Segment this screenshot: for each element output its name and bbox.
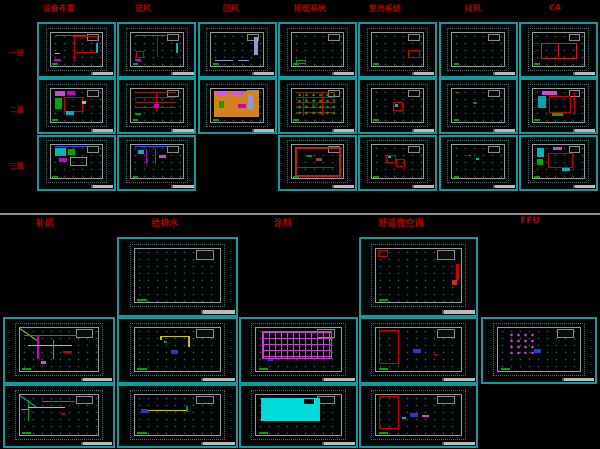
core-block (167, 34, 179, 41)
core-block (196, 396, 214, 404)
plan-thumbnail-top-r1-c7[interactable] (519, 22, 598, 78)
scale-bar (137, 368, 146, 370)
column-label-top-1: 设备布置 (43, 3, 75, 14)
plan-drawing (532, 144, 586, 179)
plan-overlay (138, 150, 144, 154)
scale-bar (534, 176, 540, 178)
plan-thumbnail-top-r2-c2[interactable] (117, 78, 196, 134)
plan-overlay (147, 410, 187, 411)
plan-overlay (215, 60, 233, 62)
core-block (569, 34, 581, 41)
plan-overlay (296, 92, 335, 117)
scale-bar (22, 368, 31, 370)
plan-overlay (67, 91, 75, 95)
plan-overlay (24, 335, 77, 336)
core-block (167, 146, 179, 153)
plan-drawing (19, 394, 100, 436)
column-label-top-3: 回风 (223, 3, 239, 14)
title-stamp (444, 378, 475, 382)
plan-overlay (248, 95, 253, 110)
plan-drawing (255, 394, 341, 436)
plan-overlay (146, 149, 147, 164)
plan-dimension-frame (528, 140, 590, 183)
plan-drawing (210, 88, 264, 123)
plan-drawing (210, 32, 264, 67)
plan-overlay (396, 159, 405, 167)
plan-thumbnail-top-r2-c6[interactable] (439, 78, 518, 134)
plan-dimension-frame (287, 84, 349, 127)
title-stamp (495, 72, 515, 75)
column-label-bottom-3: 涂料 (274, 216, 292, 229)
title-stamp (414, 72, 434, 75)
plan-overlay (141, 409, 148, 413)
plan-overlay (54, 59, 61, 62)
plan-overlay (574, 92, 575, 115)
column-label-bottom-5: FFU (520, 216, 540, 226)
scale-bar (454, 176, 460, 178)
scale-bar (52, 63, 58, 65)
plan-overlay (135, 146, 167, 147)
plan-overlay (402, 417, 406, 419)
title-stamp (203, 378, 235, 382)
plan-overlay (136, 51, 144, 58)
plan-overlay (74, 36, 75, 61)
plan-overlay (66, 111, 74, 115)
plan-dimension-frame (126, 84, 188, 127)
plan-overlay (37, 335, 39, 359)
plan-thumbnail-bottom-B-c2[interactable] (117, 317, 238, 384)
plan-overlay (231, 91, 244, 95)
plan-thumbnail-top-r2-c1[interactable] (37, 78, 116, 134)
plan-overlay (379, 330, 399, 364)
plan-dimension-frame (447, 28, 509, 71)
plan-thumbnail-bottom-C-c4[interactable] (359, 384, 478, 448)
plan-overlay (216, 92, 226, 97)
column-label-top-5: 室外系统 (369, 3, 401, 14)
core-block (196, 250, 214, 260)
row-label-floor-2: 二层 (10, 105, 24, 115)
plan-overlay (164, 341, 167, 343)
plan-thumbnail-bottom-C-c3[interactable] (239, 384, 358, 448)
title-stamp (324, 378, 355, 382)
title-stamp (444, 310, 475, 315)
core-block (87, 146, 99, 153)
plan-overlay (542, 91, 557, 95)
plan-drawing (375, 394, 461, 436)
plan-overlay (508, 332, 536, 354)
title-stamp (173, 185, 193, 188)
plan-drawing (255, 327, 341, 371)
scale-bar (137, 432, 146, 434)
scale-bar (293, 63, 299, 65)
plan-drawing (451, 32, 505, 67)
scale-bar (133, 63, 139, 65)
plan-overlay (538, 96, 546, 108)
title-stamp (173, 72, 193, 75)
plan-overlay (188, 336, 190, 347)
title-stamp (334, 72, 354, 75)
plan-overlay (476, 158, 479, 160)
plan-thumbnail-top-r1-c1[interactable] (37, 22, 116, 78)
plan-dimension-frame (130, 390, 226, 440)
title-stamp (93, 129, 113, 132)
plan-overlay (238, 104, 246, 108)
plan-overlay (62, 413, 65, 415)
plan-thumbnail-top-r1-c5[interactable] (358, 22, 437, 78)
plan-drawing (375, 327, 461, 371)
plan-overlay (262, 331, 331, 359)
core-block (437, 329, 455, 337)
plan-dimension-frame (130, 244, 226, 307)
plan-dimension-frame (130, 323, 226, 375)
plan-thumbnail-top-r3-c7[interactable] (519, 135, 598, 191)
plan-overlay (41, 361, 46, 365)
plan-overlay (537, 148, 545, 157)
plan-overlay (156, 92, 157, 111)
plan-drawing (19, 327, 100, 371)
plan-overlay (468, 155, 471, 157)
scale-bar (379, 432, 388, 434)
cad-canvas[interactable]: 设备布置送风回风排烟系统室外系统排风CA 一层二层三层 补风给排水涂料舒适性空调… (0, 0, 600, 449)
plan-dimension-frame (367, 140, 429, 183)
plan-overlay (553, 147, 562, 150)
plan-overlay (74, 36, 98, 53)
column-label-top-2: 送风 (135, 3, 151, 14)
plan-thumbnail-top-r1-c2[interactable] (117, 22, 196, 78)
plan-thumbnail-bottom-B-c3[interactable] (239, 317, 358, 384)
title-stamp (414, 129, 434, 132)
plan-overlay (307, 155, 312, 158)
plan-overlay (157, 36, 158, 57)
plan-dimension-frame (46, 140, 108, 183)
plan-dimension-frame (126, 28, 188, 71)
plan-drawing (532, 32, 586, 67)
plan-overlay (160, 336, 189, 337)
core-block (408, 146, 420, 153)
plan-dimension-frame (447, 140, 509, 183)
plan-dimension-frame (493, 323, 585, 375)
core-block (408, 90, 420, 97)
plan-thumbnail-top-r3-c4[interactable] (278, 135, 357, 191)
plan-thumbnail-top-r2-c3[interactable] (198, 78, 277, 134)
scale-bar (534, 119, 540, 121)
scale-bar (213, 63, 219, 65)
plan-dimension-frame (447, 84, 509, 127)
plan-overlay (379, 396, 399, 428)
plan-overlay (82, 101, 87, 104)
plan-overlay (549, 96, 571, 113)
section-divider (0, 213, 600, 215)
title-stamp (575, 185, 595, 188)
plan-thumbnail-bottom-B-c5[interactable] (481, 317, 597, 384)
core-block (87, 90, 99, 97)
plan-overlay (135, 113, 141, 115)
plan-thumbnail-bottom-B-c1[interactable] (3, 317, 115, 384)
plan-drawing (451, 88, 505, 123)
core-block (557, 329, 575, 337)
plan-overlay (238, 60, 249, 62)
scale-bar (213, 119, 219, 121)
core-block (408, 34, 420, 41)
plan-drawing (50, 88, 104, 123)
plan-drawing (134, 327, 222, 371)
plan-overlay (155, 149, 156, 164)
plan-overlay (64, 97, 82, 112)
plan-dimension-frame (371, 390, 465, 440)
row-label-floor-1: 一层 (10, 48, 24, 58)
plan-dimension-frame (126, 140, 188, 183)
scale-bar (373, 119, 379, 121)
plan-thumbnail-bottom-A-c2[interactable] (117, 237, 238, 317)
plan-drawing (130, 32, 184, 67)
plan-drawing (371, 88, 425, 123)
scale-bar (454, 119, 460, 121)
plan-dimension-frame (371, 244, 465, 307)
plan-overlay (552, 113, 563, 116)
plan-dimension-frame (251, 323, 345, 375)
plan-overlay (159, 155, 166, 159)
scale-bar (52, 119, 58, 121)
plan-drawing (291, 88, 345, 123)
scale-bar (133, 176, 139, 178)
title-stamp (203, 310, 235, 315)
plan-overlay (186, 406, 188, 412)
core-block (76, 329, 93, 337)
plan-thumbnail-top-r3-c2[interactable] (117, 135, 196, 191)
plan-overlay (171, 350, 179, 354)
plan-thumbnail-top-r2-c5[interactable] (358, 78, 437, 134)
plan-overlay (160, 336, 162, 340)
plan-dimension-frame (528, 84, 590, 127)
plan-overlay (295, 147, 341, 177)
core-block (437, 250, 455, 260)
column-label-top-4: 排烟系统 (294, 3, 326, 14)
plan-thumbnail-bottom-A-c4[interactable] (359, 237, 478, 317)
plan-overlay (96, 43, 98, 52)
scale-bar (454, 63, 460, 65)
plan-dimension-frame (287, 140, 349, 183)
title-stamp (254, 72, 274, 75)
plan-overlay (408, 50, 420, 58)
plan-dimension-frame (287, 28, 349, 71)
plan-dimension-frame (371, 323, 465, 375)
scale-bar (379, 368, 388, 370)
plan-overlay (297, 167, 334, 172)
plan-overlay (378, 250, 388, 256)
title-stamp (334, 185, 354, 188)
plan-overlay (562, 168, 569, 171)
column-label-bottom-4: 舒适性空调 (378, 216, 423, 229)
scale-bar (259, 368, 268, 370)
title-stamp (575, 129, 595, 132)
plan-drawing (532, 88, 586, 123)
plan-drawing (371, 32, 425, 67)
plan-thumbnail-top-r1-c4[interactable] (278, 22, 357, 78)
plan-thumbnail-top-r1-c6[interactable] (439, 22, 518, 78)
title-stamp (564, 378, 594, 382)
plan-thumbnail-top-r3-c1[interactable] (37, 135, 116, 191)
plan-thumbnail-bottom-B-c4[interactable] (359, 317, 478, 384)
scale-bar (137, 299, 146, 301)
core-block (196, 329, 214, 337)
plan-overlay (219, 101, 225, 108)
plan-overlay (28, 400, 30, 421)
plan-overlay (55, 146, 87, 147)
plan-drawing (291, 144, 345, 179)
plan-overlay (473, 102, 477, 104)
plan-overlay (304, 399, 314, 404)
title-stamp (575, 72, 595, 75)
scale-bar (373, 63, 379, 65)
scale-bar (133, 119, 139, 121)
plan-dimension-frame (15, 323, 104, 375)
plan-overlay (28, 345, 72, 346)
plan-overlay (413, 349, 421, 353)
core-block (488, 90, 500, 97)
title-stamp (254, 129, 274, 132)
core-block (328, 34, 340, 41)
row-label-floor-3: 三层 (10, 161, 24, 171)
scale-bar (501, 368, 510, 370)
plan-drawing (130, 88, 184, 123)
plan-overlay (135, 59, 142, 62)
plan-overlay (176, 43, 178, 52)
scale-bar (22, 432, 31, 434)
plan-overlay (42, 401, 75, 402)
plan-dimension-frame (367, 28, 429, 71)
title-stamp (324, 442, 355, 446)
plan-dimension-frame (46, 28, 108, 71)
plan-dimension-frame (15, 390, 104, 440)
plan-drawing (451, 144, 505, 179)
plan-overlay (456, 264, 458, 280)
plan-dimension-frame (206, 84, 268, 127)
plan-overlay (59, 158, 67, 162)
plan-drawing (291, 32, 345, 67)
plan-overlay (395, 104, 398, 107)
title-stamp (495, 185, 515, 188)
plan-overlay (55, 148, 66, 156)
plan-overlay (388, 156, 391, 158)
title-stamp (83, 378, 112, 382)
plan-overlay (154, 104, 159, 108)
column-label-bottom-2: 给排水 (151, 216, 178, 229)
plan-dimension-frame (251, 390, 345, 440)
plan-overlay (21, 409, 28, 410)
title-stamp (83, 442, 112, 446)
plan-overlay (55, 98, 62, 109)
plan-thumbnail-top-r3-c6[interactable] (439, 135, 518, 191)
plan-drawing (371, 144, 425, 179)
plan-drawing (50, 32, 104, 67)
plan-overlay (434, 354, 437, 356)
title-stamp (93, 185, 113, 188)
scale-bar (373, 176, 379, 178)
plan-dimension-frame (46, 84, 108, 127)
plan-dimension-frame (367, 84, 429, 127)
plan-thumbnail-top-r2-c7[interactable] (519, 78, 598, 134)
plan-overlay (558, 43, 559, 58)
scale-bar (379, 299, 388, 301)
title-stamp (173, 129, 193, 132)
plan-drawing (134, 394, 222, 436)
scale-bar (52, 176, 58, 178)
plan-overlay (316, 158, 322, 161)
plan-drawing (50, 144, 104, 179)
column-label-top-7: CA (549, 3, 561, 12)
plan-overlay (254, 37, 258, 56)
scale-bar (293, 119, 299, 121)
plan-overlay (548, 153, 573, 168)
plan-drawing (130, 144, 184, 179)
plan-overlay (534, 349, 541, 353)
plan-dimension-frame (528, 28, 590, 71)
plan-overlay (537, 159, 543, 165)
title-stamp (93, 72, 113, 75)
plan-overlay (55, 53, 60, 54)
plan-overlay (410, 413, 418, 417)
scale-bar (534, 63, 540, 65)
plan-overlay (452, 280, 457, 285)
title-stamp (203, 442, 235, 446)
title-stamp (495, 129, 515, 132)
title-stamp (444, 442, 475, 446)
column-label-top-6: 排风 (465, 3, 481, 14)
plan-overlay (28, 407, 66, 408)
plan-overlay (541, 43, 577, 60)
title-stamp (334, 129, 354, 132)
title-stamp (414, 185, 434, 188)
plan-overlay (53, 340, 55, 359)
core-block (488, 146, 500, 153)
plan-thumbnail-top-r2-c4[interactable] (278, 78, 357, 134)
plan-drawing (134, 248, 222, 303)
plan-dimension-frame (206, 28, 268, 71)
plan-overlay (268, 359, 273, 362)
plan-overlay (456, 92, 459, 93)
scale-bar (259, 432, 268, 434)
plan-overlay (70, 157, 86, 166)
plan-overlay (63, 351, 72, 352)
plan-overlay (68, 149, 75, 155)
column-label-bottom-1: 补风 (36, 216, 54, 229)
plan-thumbnail-bottom-C-c1[interactable] (3, 384, 115, 448)
plan-thumbnail-bottom-C-c2[interactable] (117, 384, 238, 448)
plan-drawing (497, 327, 581, 371)
plan-overlay (422, 415, 429, 417)
plan-thumbnail-top-r3-c5[interactable] (358, 135, 437, 191)
plan-thumbnail-top-r1-c3[interactable] (198, 22, 277, 78)
core-block (437, 396, 455, 404)
core-block (488, 34, 500, 41)
plan-drawing (375, 248, 461, 303)
core-block (76, 396, 93, 404)
plan-overlay (55, 91, 65, 96)
scale-bar (293, 176, 299, 178)
